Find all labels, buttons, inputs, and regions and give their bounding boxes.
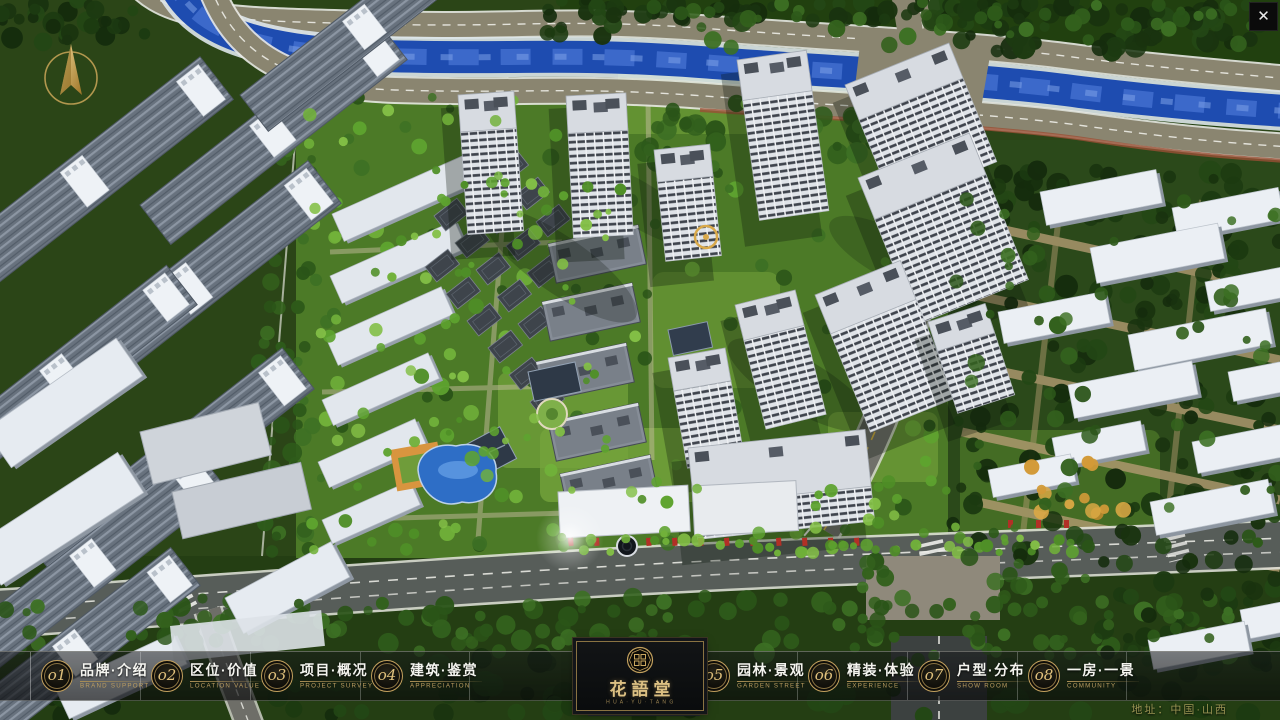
project-logo-panel[interactable]: 花語堂 H U A · Y U · T A N G	[576, 641, 704, 711]
nav-label-en: EXPERIENCE	[847, 683, 884, 687]
nav-labels: 区位·价值 LOCATION VALUE	[190, 662, 250, 689]
nav-label-zh: 园林·景观	[737, 662, 797, 678]
nav-label-en: PROJECT SURVEY	[300, 683, 337, 687]
nav-label-en: SHOW ROOM	[957, 683, 994, 687]
nav-item-decoration[interactable]: o6 精装·体验 EXPERIENCE	[797, 652, 907, 700]
close-button[interactable]: ✕	[1249, 2, 1278, 31]
nav-item-views[interactable]: o8 一房·一景 COMMUNITY	[1017, 652, 1127, 700]
nav-label-zh: 户型·分布	[957, 662, 1017, 678]
nav-label-en: COMMUNITY	[1067, 683, 1104, 687]
nav-item-architecture[interactable]: o4 建筑·鉴赏 APPRECIATION	[360, 652, 470, 700]
nav-badge-3: o3	[261, 660, 293, 692]
masterplan-render	[0, 0, 1280, 720]
nav-labels: 建筑·鉴赏 APPRECIATION	[410, 662, 469, 689]
nav-labels: 项目·概况 PROJECT SURVEY	[300, 662, 360, 689]
nav-labels: 一房·一景 COMMUNITY	[1067, 662, 1126, 689]
nav-badge-1: o1	[41, 660, 73, 692]
nav-badge-8: o8	[1028, 660, 1060, 692]
nav-label-zh: 区位·价值	[190, 662, 250, 678]
nav-labels: 园林·景观 GARDEN STREET	[737, 662, 797, 689]
nav-badge-6: o6	[808, 660, 840, 692]
nav-group-right: o5 园林·景观 GARDEN STREET o6 精装·体验 EXPERIEN…	[687, 652, 1127, 700]
compass-icon	[34, 38, 108, 112]
nav-label-zh: 精装·体验	[847, 662, 907, 678]
nav-badge-4: o4	[371, 660, 403, 692]
nav-badge-2: o2	[151, 660, 183, 692]
app-window: ✕ o1 品牌·介绍 BRAND SUPPORT o2 区位·价值 LOCATI…	[0, 0, 1280, 720]
nav-label-en: GARDEN STREET	[737, 683, 774, 687]
nav-labels: 精装·体验 EXPERIENCE	[847, 662, 907, 689]
nav-item-project[interactable]: o3 项目·概况 PROJECT SURVEY	[250, 652, 360, 700]
nav-item-floorplan[interactable]: o7 户型·分布 SHOW ROOM	[907, 652, 1017, 700]
nav-label-zh: 一房·一景	[1067, 662, 1126, 678]
project-name: 花語堂	[605, 675, 676, 700]
address-text: 地址：中国·山西	[1131, 701, 1228, 717]
nav-label-zh: 品牌·介绍	[80, 662, 140, 678]
nav-label-en: APPRECIATION	[410, 683, 447, 687]
nav-label-zh: 项目·概况	[300, 662, 360, 678]
seal-icon	[625, 645, 655, 675]
nav-item-brand[interactable]: o1 品牌·介绍 BRAND SUPPORT	[30, 652, 140, 700]
nav-label-en: BRAND SUPPORT	[80, 683, 117, 687]
project-name-latin: H U A · Y U · T A N G	[606, 700, 674, 703]
nav-group-left: o1 品牌·介绍 BRAND SUPPORT o2 区位·价值 LOCATION…	[30, 652, 470, 700]
lens-flare	[536, 504, 604, 572]
nav-label-en: LOCATION VALUE	[190, 683, 227, 687]
nav-badge-7: o7	[918, 660, 950, 692]
nav-labels: 品牌·介绍 BRAND SUPPORT	[80, 662, 140, 689]
nav-label-zh: 建筑·鉴赏	[410, 662, 469, 678]
nav-item-location[interactable]: o2 区位·价值 LOCATION VALUE	[140, 652, 250, 700]
nav-labels: 户型·分布 SHOW ROOM	[957, 662, 1017, 689]
